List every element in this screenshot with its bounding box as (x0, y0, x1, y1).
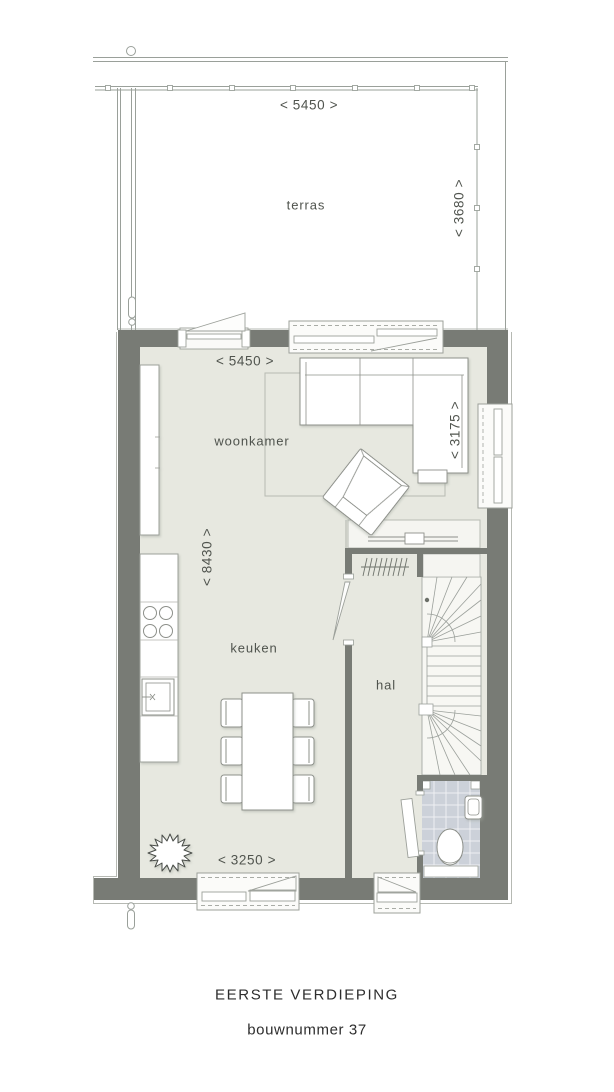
room-label-terras: terras (287, 198, 326, 213)
wall-bottom-mid (297, 878, 375, 900)
wall-top-mid (248, 330, 290, 347)
dim-sofa-zone-depth: < 3175 > (448, 401, 463, 459)
room-label-keuken: keuken (230, 641, 277, 656)
wc-corner-post (471, 781, 480, 789)
dim-terras-width: < 5450 > (280, 98, 338, 113)
dim-floor-depth: < 8430 > (200, 528, 215, 586)
window-panel (377, 893, 417, 902)
right-window (478, 404, 512, 508)
window-panel (494, 457, 502, 503)
toilet-cistern (424, 866, 478, 877)
tall-cabinet (140, 365, 160, 535)
wall-stairs-stub (417, 554, 423, 577)
wall-left (118, 330, 140, 900)
wall-bottom-left (93, 878, 198, 900)
dim-woonkamer-width: < 5450 > (216, 354, 274, 369)
dim-keuken-width: < 3250 > (218, 853, 276, 868)
window-panel (202, 892, 246, 901)
terrace-railing (93, 47, 508, 331)
wall-right-upper (487, 330, 508, 406)
slider-panel (377, 329, 437, 336)
window-panel (494, 409, 502, 455)
wall-bottom-right (419, 878, 508, 900)
sofa-footstool (418, 470, 447, 483)
walkline-dot (425, 598, 429, 602)
room-label-woonkamer: woonkamer (214, 434, 289, 449)
room-label-hal: hal (376, 678, 396, 693)
sliding-door (289, 321, 443, 353)
wall-right-lower (487, 507, 508, 900)
kitchen-sink (142, 679, 174, 715)
floor-title: EERSTE VERDIEPING (215, 987, 399, 1004)
wall-hal-left-b (345, 642, 352, 878)
floorplan-canvas: < 5450 > terras < 3680 > < 5450 > woonka… (0, 0, 614, 1092)
railing-posts (106, 86, 480, 272)
build-number: bouwnummer 37 (247, 1022, 367, 1039)
door-swing (186, 313, 245, 331)
window-panel (250, 890, 295, 901)
dim-terras-depth: < 3680 > (452, 179, 467, 237)
wall-hal-top (345, 548, 487, 554)
floorplan-drawing (0, 0, 614, 1092)
bottom-window-large (197, 873, 299, 910)
dining-table (242, 693, 293, 810)
wall-wc-top (417, 775, 487, 781)
terrace-door (178, 313, 250, 349)
slider-panel (294, 336, 374, 343)
kitchen-counter (140, 554, 178, 762)
wc-sink (465, 796, 482, 819)
railing-end-circle (127, 47, 136, 56)
door-leaf (187, 334, 241, 339)
stair-niche (423, 554, 480, 577)
bottom-window-small (374, 873, 420, 913)
